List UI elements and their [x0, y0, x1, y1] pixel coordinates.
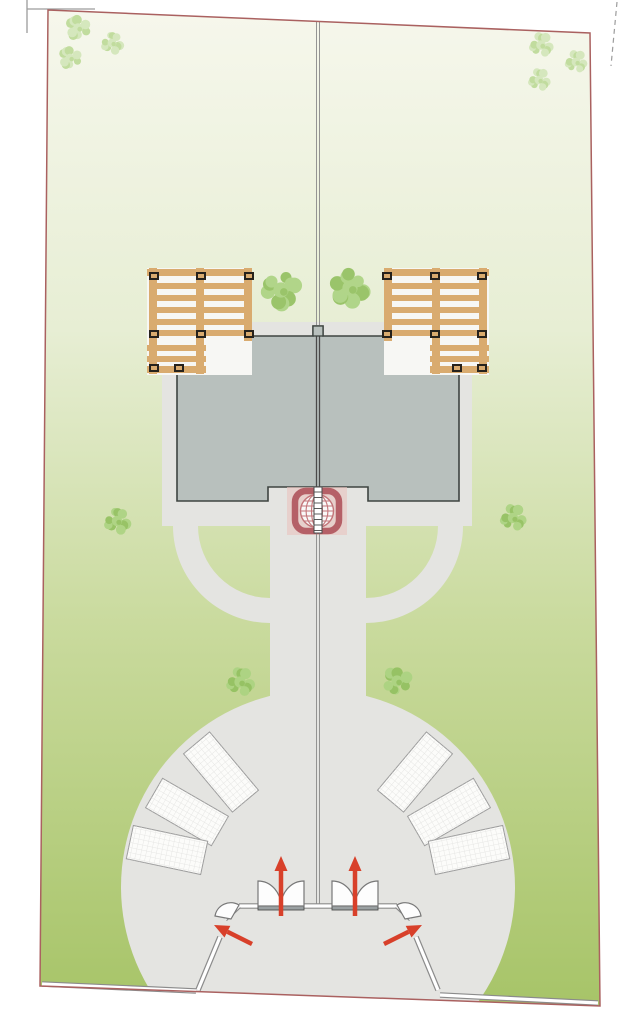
- party-wall-tab: [313, 326, 323, 336]
- parcel-area: [40, 10, 600, 1024]
- dashed-reference-line: [611, 2, 617, 66]
- entry-steps: [314, 487, 322, 533]
- pergola-post-cap: [151, 332, 157, 336]
- pergola-post-cap: [151, 366, 157, 370]
- pergola-post-cap: [432, 274, 438, 278]
- pergola-post-cap: [198, 332, 204, 336]
- site-plan-page: [0, 0, 634, 1024]
- pergola-post-cap: [198, 274, 204, 278]
- pergola-post-cap: [384, 332, 390, 336]
- pergola-rail: [432, 268, 440, 374]
- pergola-rail: [149, 268, 157, 374]
- pergola-right: [382, 268, 489, 375]
- pergola-post-cap: [479, 366, 485, 370]
- pergola-post-cap: [454, 366, 460, 370]
- pergola-post-cap: [176, 366, 182, 370]
- site-plan-drawing: [0, 0, 634, 1024]
- pergola-post-cap: [479, 274, 485, 278]
- pergola-rail: [479, 268, 487, 374]
- pergola-post-cap: [246, 332, 252, 336]
- pergola-post-cap: [432, 332, 438, 336]
- pergola-post-cap: [151, 274, 157, 278]
- pergola-left: [147, 268, 254, 375]
- pergola-rail: [196, 268, 204, 374]
- pergola-post-cap: [246, 274, 252, 278]
- pergola-post-cap: [479, 332, 485, 336]
- pergola-post-cap: [384, 274, 390, 278]
